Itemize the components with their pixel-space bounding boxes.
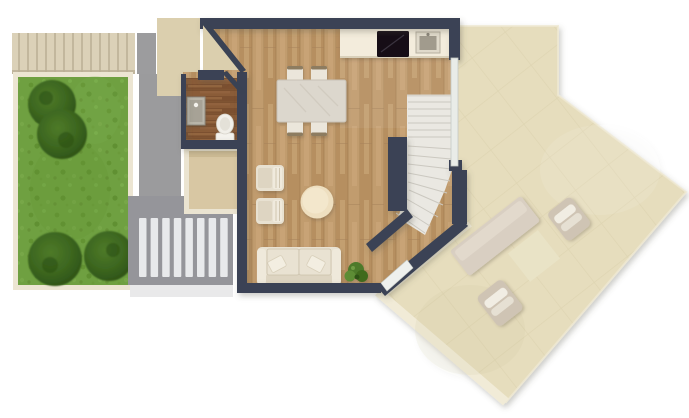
- wall-bathroom-left: [181, 74, 186, 144]
- bathroom-sink: [187, 97, 205, 125]
- kitchen-sink: [416, 32, 440, 53]
- wall-right-top: [449, 18, 460, 60]
- wall-stairs-left: [388, 137, 407, 211]
- garden: [13, 72, 134, 290]
- toilet: [216, 114, 234, 142]
- dining-chair: [287, 66, 303, 81]
- walkway-strip: [130, 285, 233, 297]
- dining-chair: [287, 121, 303, 136]
- hedge-strip: [12, 33, 135, 74]
- wall-bottom: [237, 283, 381, 293]
- cooktop: [377, 31, 409, 57]
- sofa: [257, 247, 341, 286]
- floor-plan-canvas: 3D top-down architectural floor plan ren…: [0, 0, 689, 418]
- dining-chair: [311, 121, 327, 136]
- wall-left-living: [237, 72, 247, 293]
- wall-bathroom-top: [198, 70, 224, 80]
- storage-room: [184, 146, 246, 214]
- wall-bathroom-bottom: [181, 140, 247, 149]
- coffee-table: [301, 186, 334, 219]
- terrace-window: [451, 58, 458, 166]
- wall-top: [200, 18, 460, 29]
- armchair: [256, 165, 284, 191]
- armchair: [256, 198, 284, 224]
- wall-stairs-outer: [452, 170, 467, 224]
- floor-plan-svg: 3D top-down architectural floor plan ren…: [0, 0, 689, 418]
- bathroom: [184, 78, 239, 142]
- kitchen-counter: [340, 29, 458, 58]
- dining-chair: [311, 66, 327, 81]
- dining-table: [277, 80, 346, 122]
